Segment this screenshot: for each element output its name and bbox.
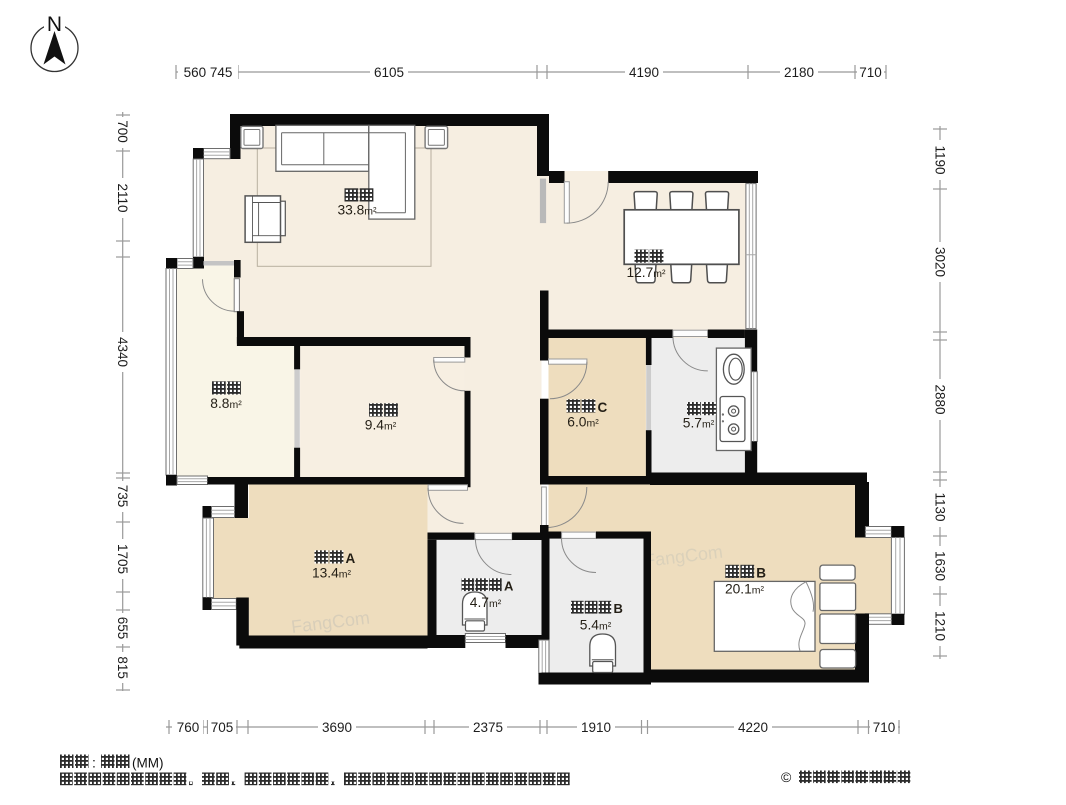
svg-text:12.7m²: 12.7m²	[626, 265, 666, 280]
svg-text:13.4m²: 13.4m²	[312, 566, 352, 581]
svg-text:3020: 3020	[933, 247, 948, 277]
svg-text:760: 760	[177, 720, 200, 735]
svg-text:B: B	[756, 565, 766, 580]
svg-text:20.1m²: 20.1m²	[725, 582, 765, 597]
svg-text:4190: 4190	[629, 65, 659, 80]
svg-text:A: A	[346, 551, 356, 566]
svg-text::: :	[92, 755, 96, 771]
svg-text:(MM): (MM)	[132, 756, 163, 771]
svg-text:4220: 4220	[738, 720, 768, 735]
svg-text:2880: 2880	[933, 384, 948, 414]
svg-text:560 745: 560 745	[184, 65, 233, 80]
svg-text:5.4m²: 5.4m²	[580, 618, 612, 633]
svg-text:705: 705	[211, 720, 234, 735]
svg-text:C: C	[598, 400, 608, 415]
svg-text:2110: 2110	[115, 183, 130, 212]
svg-text:815: 815	[115, 656, 130, 679]
svg-text:9.4m²: 9.4m²	[365, 418, 397, 433]
svg-text:A: A	[504, 579, 514, 594]
svg-text:6105: 6105	[374, 65, 404, 80]
svg-text:1910: 1910	[581, 720, 611, 735]
svg-text:655: 655	[115, 617, 130, 640]
svg-text:2375: 2375	[473, 720, 503, 735]
svg-text:1130: 1130	[933, 492, 948, 521]
svg-text:700: 700	[115, 120, 130, 143]
svg-text:6.0m²: 6.0m²	[567, 415, 599, 430]
svg-text:1210: 1210	[933, 611, 948, 641]
svg-text:1705: 1705	[115, 544, 130, 574]
svg-text:©: ©	[781, 769, 792, 785]
svg-text:710: 710	[873, 720, 896, 735]
svg-text:8.8m²: 8.8m²	[210, 396, 242, 411]
svg-text:710: 710	[859, 65, 882, 80]
svg-text:4.7m²: 4.7m²	[470, 595, 502, 610]
svg-text:3690: 3690	[322, 720, 352, 735]
svg-text:735: 735	[115, 485, 130, 508]
svg-text:B: B	[614, 601, 623, 616]
svg-text:1630: 1630	[933, 551, 948, 581]
svg-text:4340: 4340	[115, 337, 130, 367]
svg-text:5.7m²: 5.7m²	[683, 416, 715, 431]
svg-text:33.8m²: 33.8m²	[337, 203, 377, 218]
svg-text:2180: 2180	[784, 65, 814, 80]
svg-text:1190: 1190	[933, 145, 948, 174]
